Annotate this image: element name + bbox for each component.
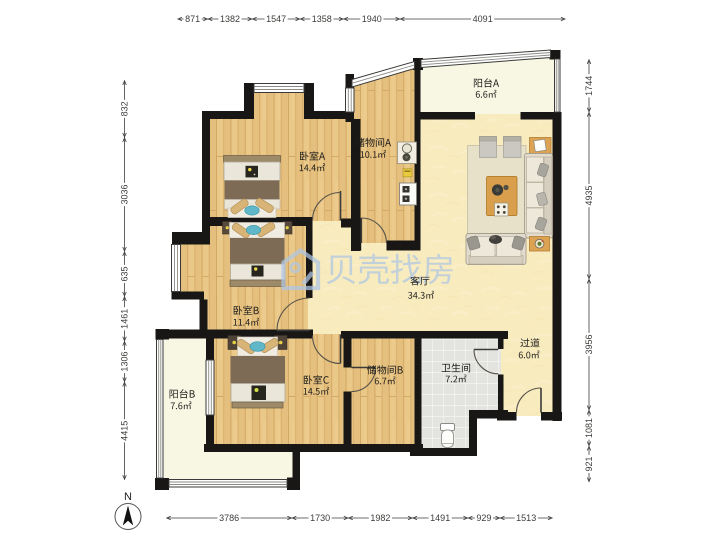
svg-text:4935: 4935 — [584, 186, 594, 206]
svg-text:3956: 3956 — [584, 334, 594, 354]
svg-text:1513: 1513 — [516, 513, 536, 523]
svg-text:N: N — [124, 491, 132, 503]
svg-text:1940: 1940 — [362, 14, 382, 24]
svg-text:1358: 1358 — [312, 14, 332, 24]
svg-text:3036: 3036 — [120, 184, 130, 204]
svg-text:871: 871 — [185, 14, 200, 24]
svg-text:1744: 1744 — [584, 76, 594, 96]
svg-text:1730: 1730 — [310, 513, 330, 523]
svg-text:1491: 1491 — [430, 513, 450, 523]
svg-text:635: 635 — [120, 266, 130, 281]
svg-text:929: 929 — [476, 513, 491, 523]
svg-text:3786: 3786 — [219, 513, 239, 523]
svg-text:832: 832 — [120, 101, 130, 116]
svg-text:1982: 1982 — [370, 513, 390, 523]
svg-text:921: 921 — [584, 456, 594, 471]
svg-text:1081: 1081 — [584, 418, 594, 438]
svg-text:1461: 1461 — [120, 309, 130, 329]
svg-text:4091: 4091 — [473, 14, 493, 24]
svg-text:4415: 4415 — [120, 421, 130, 441]
svg-text:1306: 1306 — [120, 352, 130, 372]
svg-text:1382: 1382 — [220, 14, 240, 24]
svg-text:1547: 1547 — [266, 14, 286, 24]
